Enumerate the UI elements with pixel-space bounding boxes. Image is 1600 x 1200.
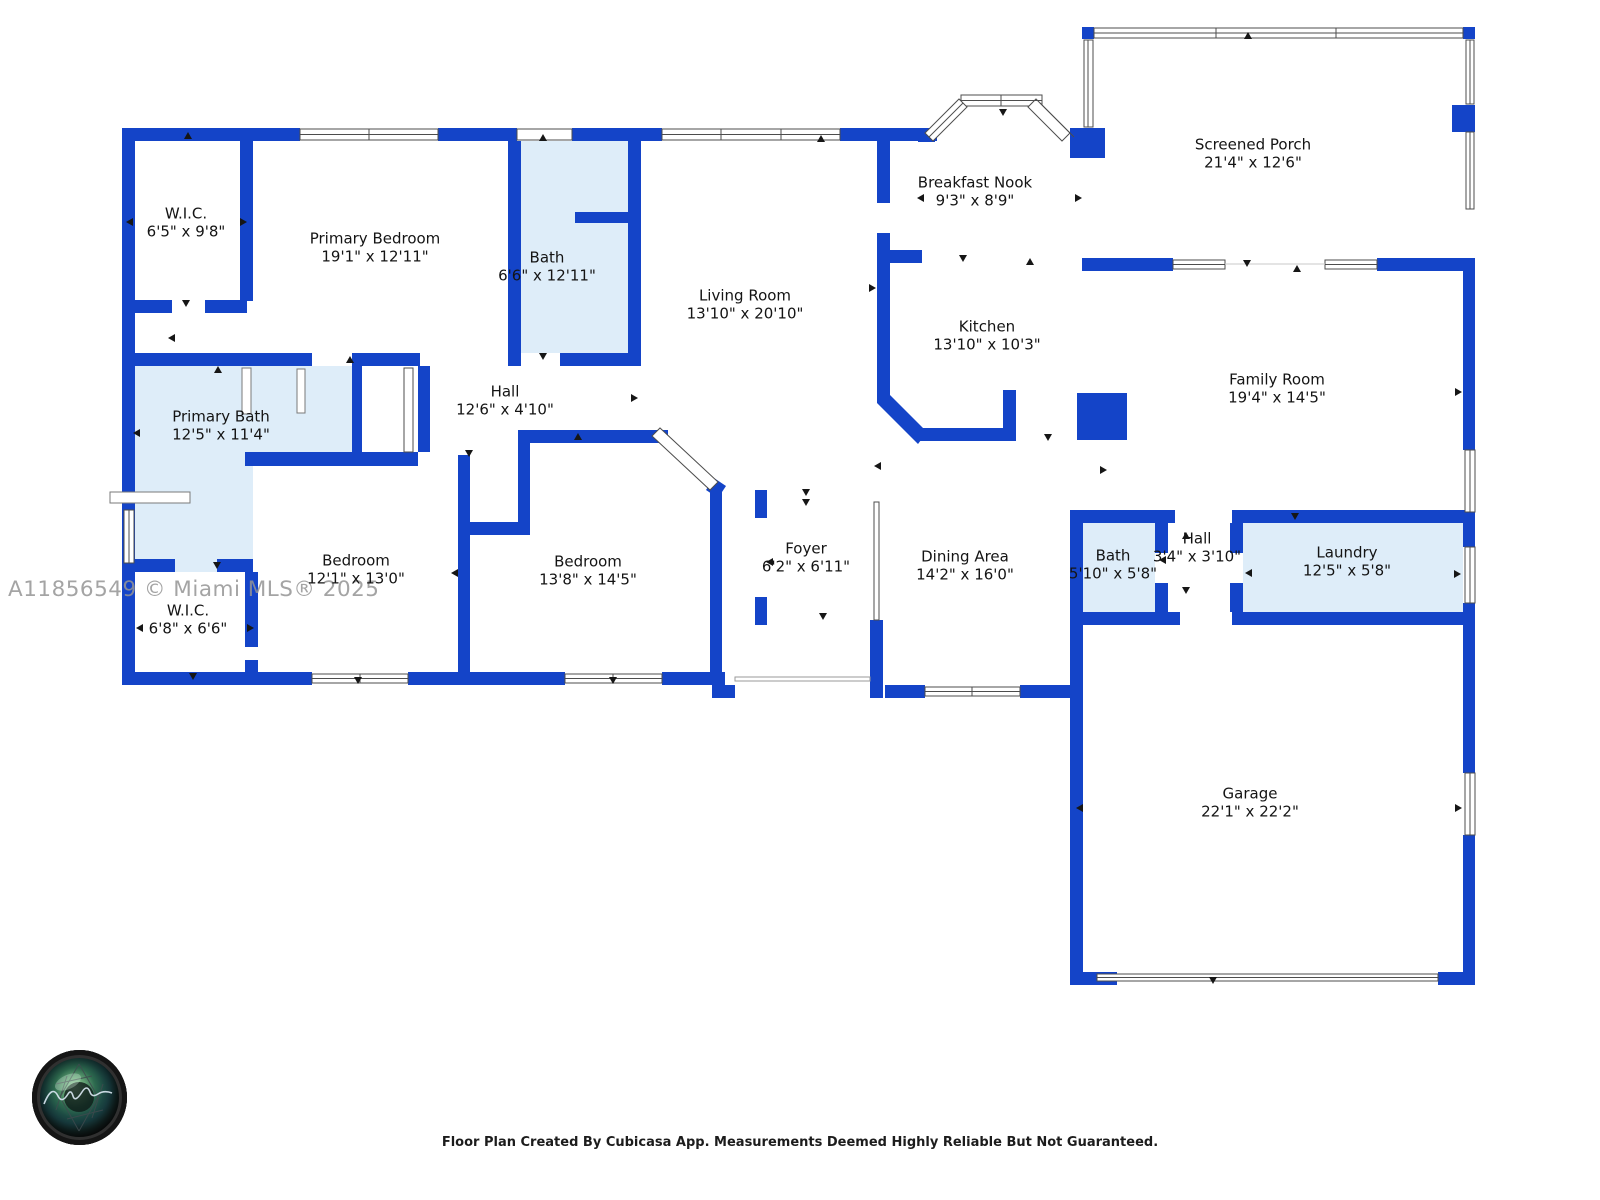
room-label-hall-1: Hall12'6" x 4'10": [456, 383, 554, 420]
entry-threshold: [735, 677, 870, 681]
lens-signature-icon: [32, 1050, 127, 1145]
room-label-family-room: Family Room19'4" x 14'5": [1228, 371, 1326, 408]
room-label-bath-1: Bath6'6" x 12'11": [498, 249, 596, 286]
room-label-hall-2: Hall3'4" x 3'10": [1153, 530, 1241, 567]
floor-plan-page: A11856549 © Miami MLS® 2025: [0, 0, 1600, 1200]
room-label-wic-top: W.I.C.6'5" x 9'8": [147, 205, 226, 242]
room-label-garage: Garage22'1" x 22'2": [1201, 785, 1299, 822]
hall-door-leaf: [404, 368, 413, 452]
room-label-dining-area: Dining Area14'2" x 16'0": [916, 548, 1014, 585]
room-label-primary-bath: Primary Bath12'5" x 11'4": [172, 408, 270, 445]
room-label-living-room: Living Room13'10" x 20'10": [687, 287, 804, 324]
diagonal-opening: [652, 428, 718, 490]
room-label-kitchen: Kitchen13'10" x 10'3": [933, 318, 1040, 355]
room-label-bedroom-1: Bedroom12'1" x 13'0": [307, 552, 405, 589]
room-label-bedroom-2: Bedroom13'8" x 14'5": [539, 553, 637, 590]
room-label-wic-bottom: W.I.C.6'8" x 6'6": [149, 602, 228, 639]
photographer-camera-lens-logo: [32, 1050, 127, 1145]
room-label-screened-porch: Screened Porch21'4" x 12'6": [1195, 136, 1311, 173]
room-label-laundry: Laundry12'5" x 5'8": [1303, 544, 1391, 581]
room-label-primary-bedroom: Primary Bedroom19'1" x 12'11": [310, 230, 441, 267]
disclaimer-caption: Floor Plan Created By Cubicasa App. Meas…: [442, 1135, 1158, 1150]
room-label-foyer: Foyer6'2" x 6'11": [762, 540, 850, 577]
foyer-door-leaf: [874, 502, 879, 620]
room-label-breakfast-nook: Breakfast Nook9'3" x 8'9": [918, 174, 1032, 211]
door-arrows: [126, 32, 1462, 984]
room-label-bath-2: Bath5'10" x 5'8": [1069, 547, 1157, 584]
